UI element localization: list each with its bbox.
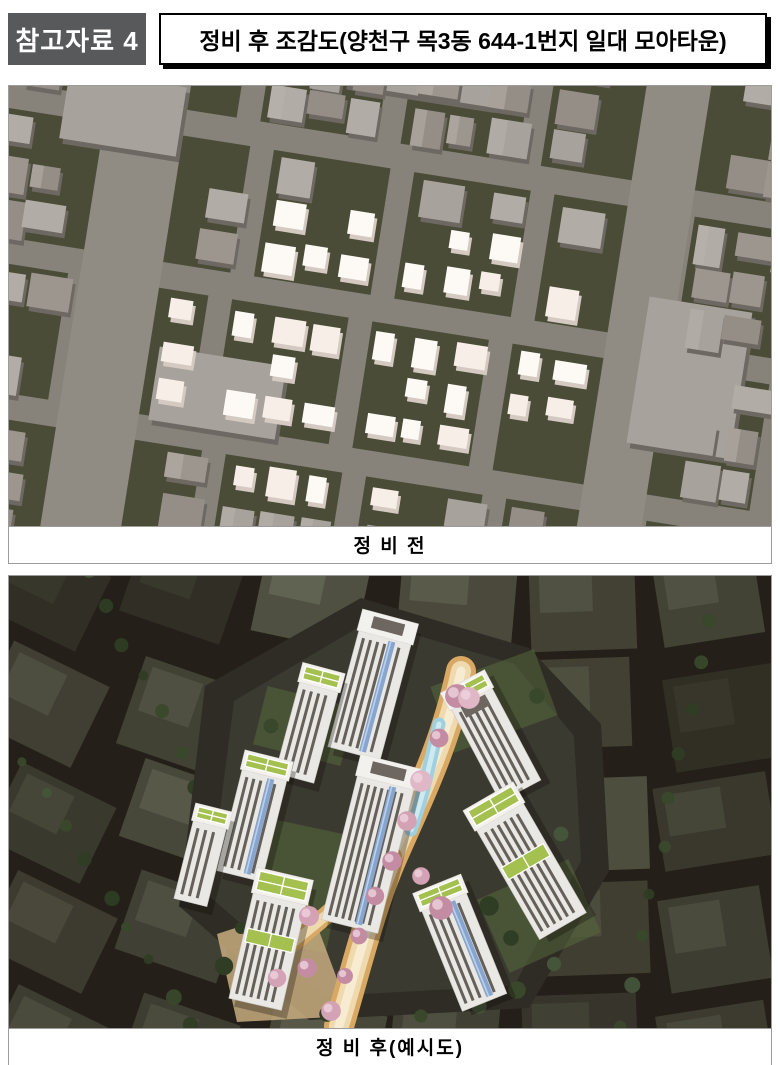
document-page: 참고자료 4 정비 후 조감도(양천구 목3동 644-1번지 일대 모아타운)… bbox=[0, 0, 780, 1065]
before-aerial-massing-model bbox=[9, 86, 771, 526]
reference-badge: 참고자료 4 bbox=[8, 13, 146, 65]
figure-after: 정 비 후(예시도) bbox=[8, 575, 772, 1065]
page-title: 정비 후 조감도(양천구 목3동 644-1번지 일대 모아타운) bbox=[159, 13, 767, 65]
after-rendering bbox=[9, 576, 771, 1028]
figure-before: 정 비 전 bbox=[8, 85, 772, 564]
before-caption: 정 비 전 bbox=[9, 526, 771, 563]
after-caption: 정 비 후(예시도) bbox=[9, 1028, 771, 1065]
page-header: 참고자료 4 정비 후 조감도(양천구 목3동 644-1번지 일대 모아타운) bbox=[8, 13, 772, 65]
